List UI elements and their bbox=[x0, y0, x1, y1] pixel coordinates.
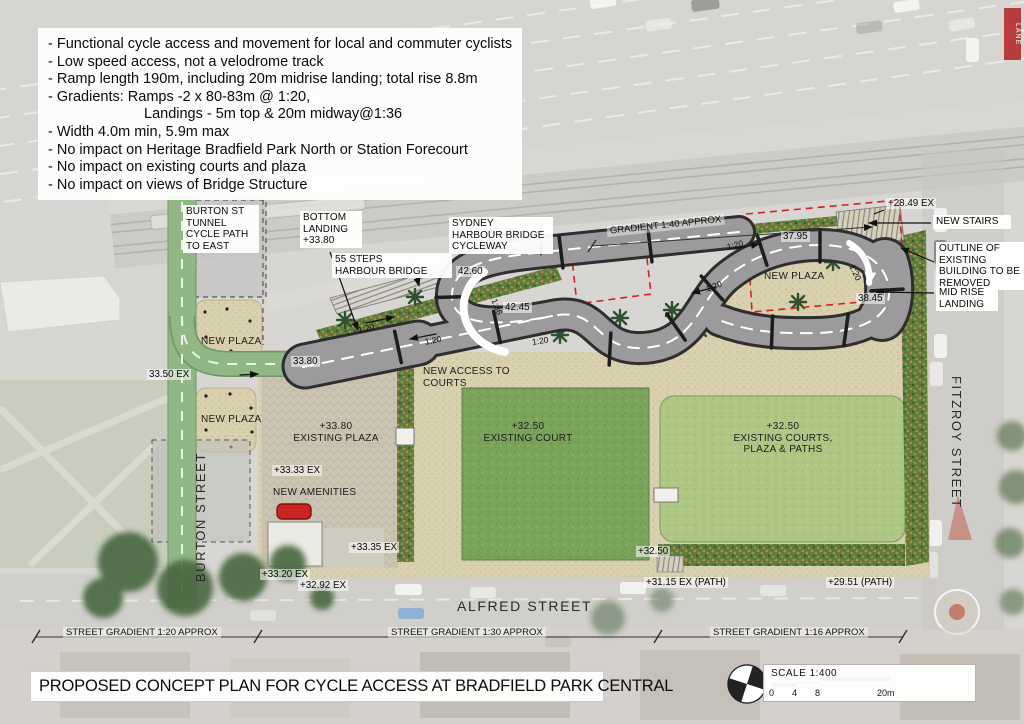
elevation-e2849: +28.49 EX bbox=[886, 198, 936, 209]
scale-tick: 20m bbox=[877, 688, 895, 698]
elevation-e2951: +29.51 (PATH) bbox=[826, 577, 894, 588]
court-gate-2 bbox=[654, 488, 678, 502]
note-line: - Functional cycle access and movement f… bbox=[48, 36, 512, 54]
area-label-new_plaza_1: NEW PLAZA bbox=[201, 336, 262, 348]
callout-midrise_landing: MID RISE LANDING bbox=[936, 286, 998, 311]
concept-plan-page: - Functional cycle access and movement f… bbox=[0, 0, 1024, 724]
callout-steps_55: 55 STEPS HARBOUR BRIDGE bbox=[332, 253, 452, 278]
note-line: - Width 4.0m min, 5.9m max bbox=[48, 124, 512, 142]
elevation-e3333: +33.33 EX bbox=[272, 465, 322, 476]
area-label-existing_court: +32.50 EXISTING COURT bbox=[482, 421, 574, 444]
new-amenities-block bbox=[277, 504, 311, 519]
street-label-burton: BURTON STREET bbox=[193, 452, 208, 582]
elevation-e4260: 42.60 bbox=[456, 266, 485, 277]
elevation-e3795: 37.95 bbox=[781, 231, 810, 242]
callout-outline_removed: OUTLINE OF EXISTING BUILDING TO BE REMOV… bbox=[936, 242, 1024, 290]
scale-tick: 4 bbox=[792, 688, 797, 698]
street-label-fitzroy: FITZROY STREET bbox=[949, 376, 964, 509]
lane-sign: LANE bbox=[1004, 8, 1021, 60]
callout-burton_tunnel: BURTON ST TUNNEL CYCLE PATH TO EAST bbox=[183, 205, 259, 253]
area-label-new_amenities: NEW AMENITIES bbox=[273, 487, 356, 499]
court-steps bbox=[657, 556, 683, 572]
note-line: - No impact on Heritage Bradfield Park N… bbox=[48, 142, 512, 160]
area-label-new_plaza_loop: NEW PLAZA bbox=[764, 271, 825, 283]
elevation-e3292: +32.92 EX bbox=[298, 580, 348, 591]
south-veg-border bbox=[658, 544, 905, 566]
white-roof-building bbox=[0, 276, 120, 332]
scale-label: SCALE 1:400 bbox=[771, 668, 837, 679]
plan-title-bar: PROPOSED CONCEPT PLAN FOR CYCLE ACCESS A… bbox=[30, 671, 604, 702]
dim-label-d3: STREET GRADIENT 1:16 APPROX bbox=[710, 627, 868, 638]
plaza-court-veg-strip bbox=[397, 350, 414, 562]
existing-court-area bbox=[462, 388, 649, 560]
callout-bottom_landing: BOTTOM LANDING +33.80 bbox=[300, 211, 362, 248]
callout-shb_cycleway: SYDNEY HARBOUR BRIDGE CYCLEWAY bbox=[449, 217, 553, 254]
area-label-existing_plaza: +33.80 EXISTING PLAZA bbox=[290, 421, 382, 444]
note-line: - Ramp length 190m, including 20m midris… bbox=[48, 71, 512, 89]
dim-label-d1: STREET GRADIENT 1:20 APPROX bbox=[63, 627, 221, 638]
plan-title: PROPOSED CONCEPT PLAN FOR CYCLE ACCESS A… bbox=[39, 677, 673, 696]
note-line: - No impact on existing courts and plaza bbox=[48, 159, 512, 177]
elevation-e3320: +33.20 EX bbox=[260, 569, 310, 580]
existing-courts-plaza-area bbox=[660, 396, 905, 542]
elevation-e3350: 33.50 EX bbox=[147, 369, 191, 380]
note-line: Landings - 5m top & 20m midway@1:36 bbox=[48, 106, 512, 124]
design-notes-box: - Functional cycle access and movement f… bbox=[38, 28, 522, 200]
dim-label-d2: STREET GRADIENT 1:30 APPROX bbox=[388, 627, 546, 638]
note-line: - No impact on views of Bridge Structure bbox=[48, 177, 512, 195]
elevation-e3115: +31.15 EX (PATH) bbox=[644, 577, 728, 588]
scale-tick: 0 bbox=[769, 688, 774, 698]
roundabout bbox=[935, 590, 979, 634]
elevation-e4245: 42.45 bbox=[503, 302, 532, 313]
left-park-photo bbox=[0, 276, 172, 568]
elevation-e3845: 38.45 bbox=[856, 293, 885, 304]
elevation-e3380: 33.80 bbox=[291, 356, 320, 367]
street-label-alfred: ALFRED STREET bbox=[457, 598, 592, 614]
note-line: - Gradients: Ramps -2 x 80-83m @ 1:20, bbox=[48, 89, 512, 107]
scale-tick: 8 bbox=[815, 688, 820, 698]
area-label-existing_courts2: +32.50 EXISTING COURTS, PLAZA & PATHS bbox=[722, 421, 844, 456]
court-gate-1 bbox=[396, 428, 414, 445]
elevation-e3335: +33.35 EX bbox=[349, 542, 399, 553]
area-label-new_plaza_2: NEW PLAZA bbox=[201, 414, 262, 426]
scale-box: SCALE 1:400 04820m bbox=[763, 664, 976, 702]
callout-new_stairs: NEW STAIRS bbox=[933, 215, 1011, 229]
elevation-e3250: +32.50 bbox=[636, 546, 670, 557]
note-line: - Low speed access, not a velodrome trac… bbox=[48, 54, 512, 72]
area-label-new_access: NEW ACCESS TO COURTS bbox=[423, 366, 510, 389]
